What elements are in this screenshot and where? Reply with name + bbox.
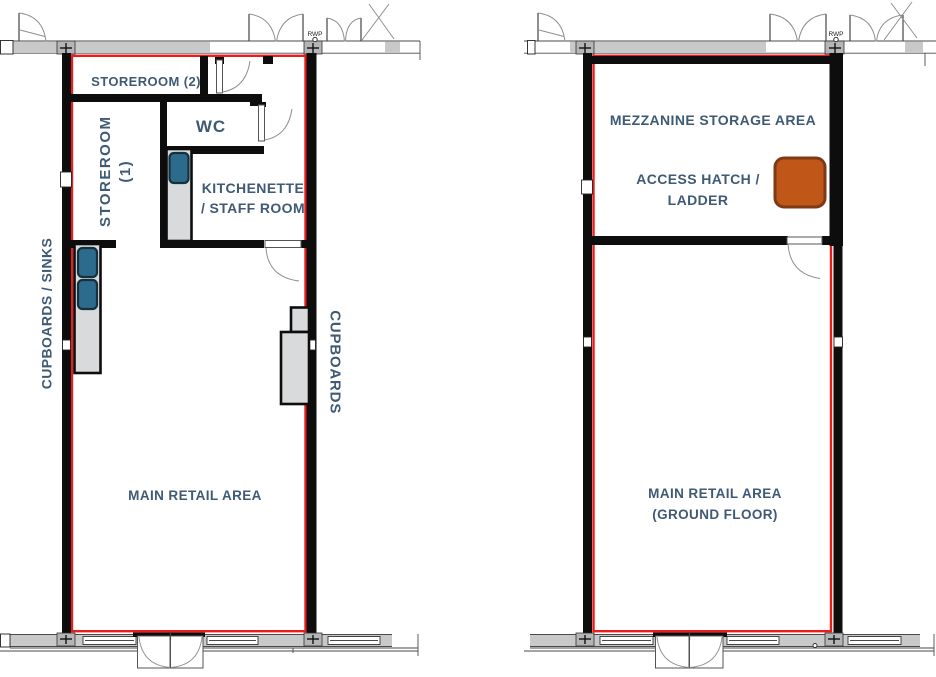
mz-pillar-bottom-left bbox=[576, 633, 594, 646]
gf-kitchenette-label-line2: / STAFF ROOM bbox=[183, 198, 323, 218]
mz-access-hatch-label: ACCESS HATCH / LADDER bbox=[618, 169, 778, 211]
mz-pillar-bottom-right bbox=[825, 633, 843, 646]
mz-main-retail-label-line1: MAIN RETAIL AREA bbox=[615, 483, 815, 504]
mz-storage-top-wall bbox=[592, 56, 831, 64]
mz-right-wall-lower bbox=[834, 246, 843, 634]
floor-plan-linework: RWP bbox=[0, 0, 936, 677]
mz-rwp-pipe-icon bbox=[834, 37, 838, 41]
gf-storeroom2-label: STOREROOM (2) bbox=[66, 72, 226, 92]
mz-access-hatch-label-line2: LADDER bbox=[618, 190, 778, 211]
gf-top-storefront: RWP bbox=[0, 4, 420, 60]
ground-floor-plan: RWP bbox=[0, 4, 420, 668]
mz-door-pair-top-right-icon bbox=[850, 2, 917, 42]
mz-right-wall-upper bbox=[830, 53, 844, 246]
mz-entrance-door-left-icon bbox=[538, 13, 565, 42]
mz-pillar-top-left bbox=[576, 41, 594, 54]
gf-left-wall-notch bbox=[61, 172, 72, 187]
mz-demise-outline bbox=[594, 56, 832, 631]
gf-left-wall-column-mark bbox=[63, 340, 71, 350]
gf-pillar-bottom-left bbox=[57, 633, 75, 646]
mz-entrance-double-door-icon bbox=[653, 632, 727, 668]
gf-top-wall-band bbox=[13, 42, 210, 53]
gf-bottom-storefront bbox=[0, 632, 418, 668]
gf-cupboards-sinks-label: CUPBOARDS / SINKS bbox=[37, 229, 58, 399]
gf-storeroom1-label-line1: STOREROOM bbox=[96, 106, 116, 236]
mz-door-stop-icon bbox=[813, 644, 817, 648]
gf-entrance-door-left-icon bbox=[19, 13, 46, 42]
mz-bottom-storefront bbox=[524, 632, 934, 668]
gf-rwp-annotation: RWP bbox=[307, 31, 322, 42]
gf-storeroom1-label: STOREROOM (1) bbox=[96, 106, 137, 236]
mz-double-door-top-icon bbox=[770, 14, 826, 42]
gf-cupboard-small bbox=[291, 308, 309, 333]
gf-double-door-top-icon bbox=[249, 14, 303, 42]
gf-kitchenette-label: KITCHENETTE / STAFF ROOM bbox=[183, 178, 323, 218]
gf-wc-door-icon bbox=[259, 105, 293, 141]
mz-window-1 bbox=[600, 637, 653, 645]
gf-sink-1-icon bbox=[78, 248, 97, 277]
gf-cupboards bbox=[281, 308, 309, 405]
mz-right-wall-column-mark bbox=[834, 337, 843, 347]
gf-door-pair-top-right-icon bbox=[327, 4, 394, 42]
mz-main-retail-label: MAIN RETAIL AREA (GROUND FLOOR) bbox=[615, 483, 815, 525]
gf-sink-2-icon bbox=[78, 280, 97, 309]
gf-window-3 bbox=[328, 637, 380, 645]
gf-wc-label: WC bbox=[181, 114, 241, 140]
gf-window-2 bbox=[207, 637, 258, 645]
mz-pillar-top-right bbox=[825, 41, 844, 54]
gf-pillar-bottom-right bbox=[304, 633, 322, 646]
mezzanine-plan: RWP bbox=[524, 2, 936, 668]
gf-storeroom1-label-line2: (1) bbox=[116, 106, 136, 236]
gf-cupboard-large bbox=[281, 332, 309, 404]
mz-rwp-annotation: RWP bbox=[828, 31, 843, 42]
mz-top-wall-band bbox=[570, 42, 766, 53]
mz-storage-bottom-wall bbox=[592, 236, 788, 245]
mz-main-retail-label-line2: (GROUND FLOOR) bbox=[615, 504, 815, 525]
gf-kitchenette-door-icon bbox=[265, 241, 301, 282]
gf-window-1 bbox=[83, 637, 136, 645]
mz-walls bbox=[582, 53, 844, 634]
mz-access-hatch-icon bbox=[775, 158, 825, 207]
gf-entrance-double-door-icon bbox=[133, 632, 205, 668]
mz-storage-door-icon bbox=[787, 237, 822, 279]
gf-kitchenette-label-line1: KITCHENETTE bbox=[183, 178, 323, 198]
mz-left-wall-notch bbox=[582, 180, 593, 194]
gf-rwp-pipe-icon bbox=[313, 37, 317, 41]
floor-plan-page: RWP bbox=[0, 0, 936, 677]
mz-access-hatch-label-line1: ACCESS HATCH / bbox=[618, 169, 778, 190]
gf-cupboards-label: CUPBOARDS bbox=[323, 310, 346, 410]
gf-pillar-top-left bbox=[57, 41, 75, 54]
mz-window-3 bbox=[848, 637, 901, 645]
mz-left-wall-column-mark bbox=[584, 337, 592, 347]
gf-pillar-top-right bbox=[304, 41, 322, 54]
gf-main-retail-label: MAIN RETAIL AREA bbox=[95, 486, 295, 506]
mz-storage-area-label: MEZZANINE STORAGE AREA bbox=[593, 110, 833, 131]
mz-window-2 bbox=[727, 637, 779, 645]
